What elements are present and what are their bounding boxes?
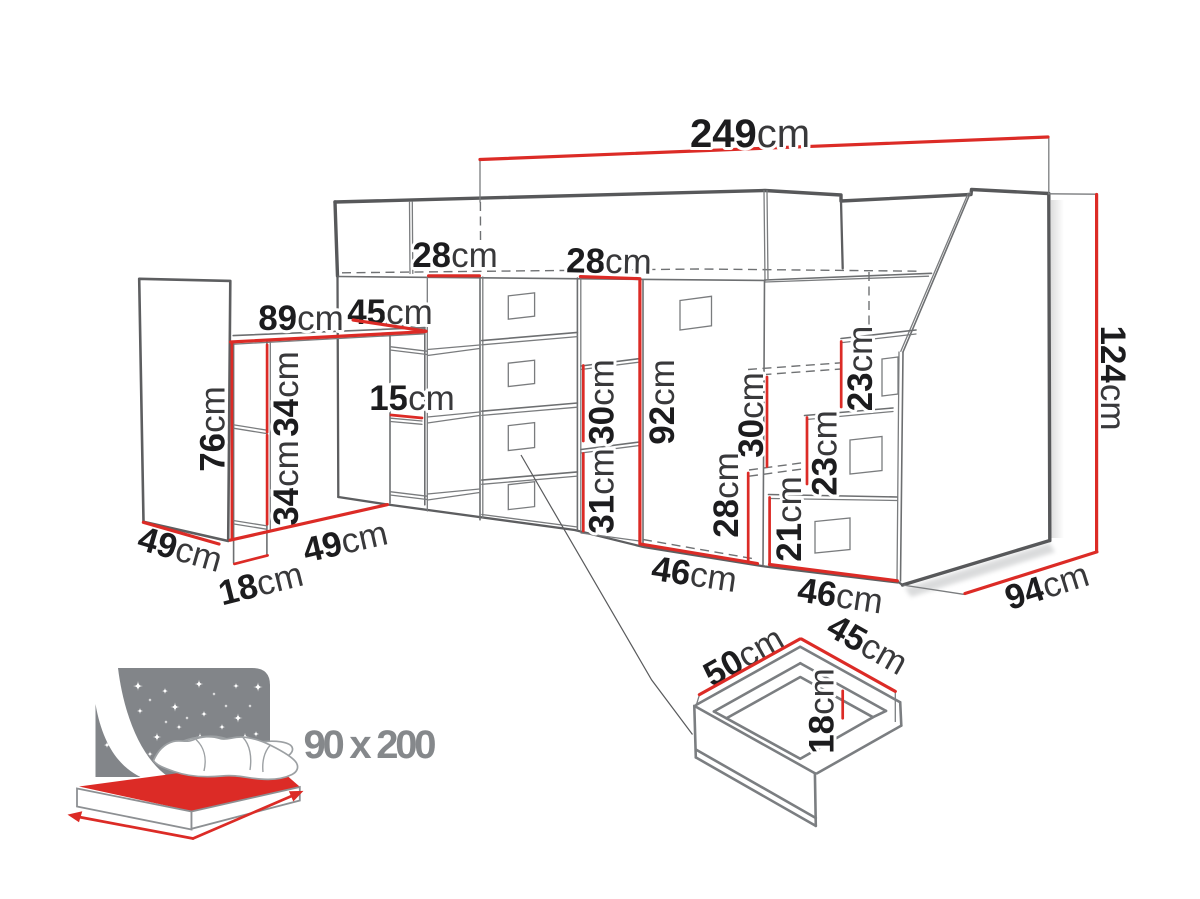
- svg-text:23cm: 23cm: [841, 326, 880, 412]
- svg-text:90 x 200: 90 x 200: [304, 723, 437, 767]
- svg-text:23cm: 23cm: [806, 410, 845, 496]
- svg-text:18cm: 18cm: [803, 668, 842, 754]
- svg-text:30cm: 30cm: [732, 372, 771, 458]
- svg-text:28cm: 28cm: [412, 236, 498, 275]
- svg-text:31cm: 31cm: [583, 448, 622, 534]
- svg-text:89cm: 89cm: [258, 299, 344, 338]
- svg-text:124cm: 124cm: [1093, 325, 1132, 430]
- svg-text:34cm: 34cm: [267, 351, 306, 437]
- svg-text:76cm: 76cm: [194, 386, 233, 472]
- svg-text:30cm: 30cm: [583, 359, 622, 445]
- svg-text:21cm: 21cm: [770, 476, 809, 562]
- svg-text:15cm: 15cm: [369, 379, 455, 418]
- svg-text:92cm: 92cm: [643, 359, 682, 445]
- svg-text:249cm: 249cm: [690, 112, 810, 156]
- svg-text:28cm: 28cm: [707, 452, 746, 538]
- svg-text:34cm: 34cm: [267, 440, 306, 526]
- svg-text:28cm: 28cm: [566, 241, 652, 281]
